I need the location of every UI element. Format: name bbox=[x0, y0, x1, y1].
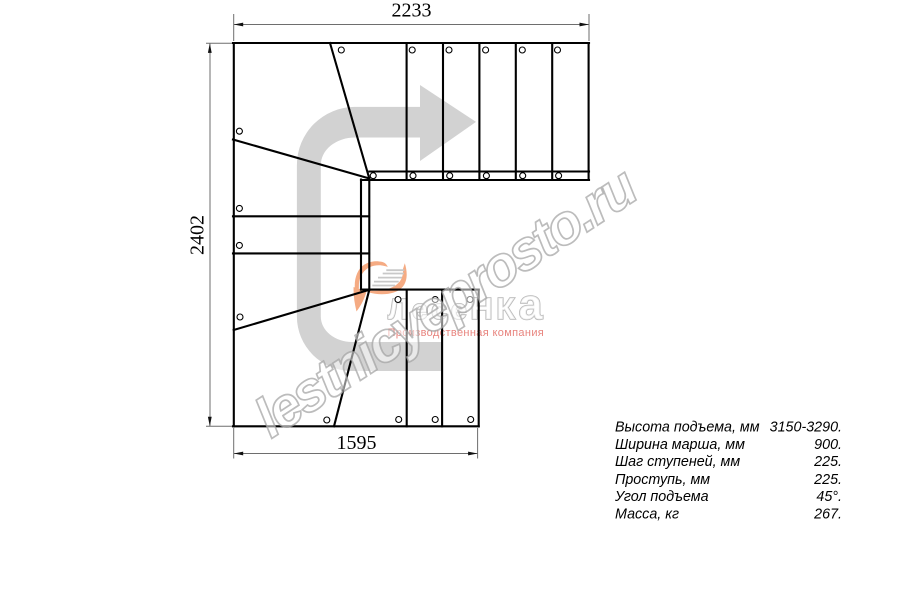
svg-text:225.: 225. bbox=[813, 472, 842, 488]
svg-text:Угол подъема: Угол подъема bbox=[614, 489, 709, 505]
svg-text:2233: 2233 bbox=[392, 0, 432, 22]
svg-text:225.: 225. bbox=[813, 454, 842, 470]
svg-text:3150-3290.: 3150-3290. bbox=[770, 420, 842, 436]
svg-text:45°.: 45°. bbox=[816, 489, 842, 505]
svg-text:1595: 1595 bbox=[337, 432, 377, 454]
svg-text:Проступь, мм: Проступь, мм bbox=[615, 472, 710, 488]
svg-text:Масса, кг: Масса, кг bbox=[615, 507, 679, 523]
svg-text:2402: 2402 bbox=[187, 215, 209, 255]
svg-text:900.: 900. bbox=[814, 437, 842, 453]
svg-text:267.: 267. bbox=[813, 507, 842, 523]
svg-text:Шаг ступеней, мм: Шаг ступеней, мм bbox=[615, 454, 740, 470]
svg-text:Ширина марша, мм: Ширина марша, мм bbox=[615, 437, 745, 453]
svg-text:Высота подъема, мм: Высота подъема, мм bbox=[615, 420, 760, 436]
